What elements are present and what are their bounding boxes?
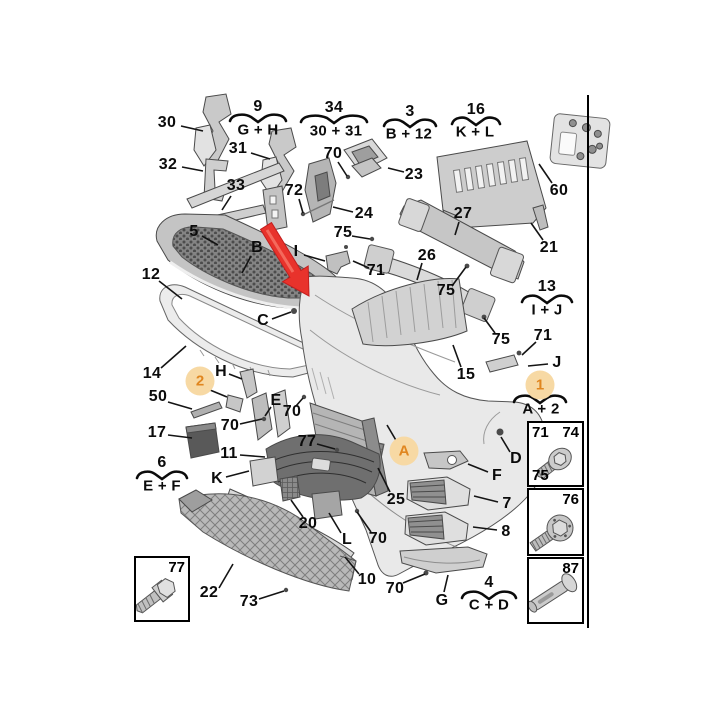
leader-line [259,591,284,599]
leader-line [417,263,422,280]
leader-lines-layer [0,0,720,720]
legend-box-pin-87: 87 [527,557,584,624]
leader-line [329,513,341,533]
legend-label-87: 87 [562,560,579,577]
leader-line [522,342,536,355]
grouping-brace [301,116,367,123]
leader-line [468,464,488,472]
leader-line [387,425,397,442]
legend-label-71: 71 [532,424,549,441]
legend-box-bolt-76: 76 [527,488,584,556]
leader-line [345,557,359,574]
legend-label-75: 75 [532,467,549,484]
leader-line [159,281,182,299]
leader-line [333,207,353,212]
leader-line [455,222,459,235]
leader-line [272,312,291,319]
leader-line [453,345,461,367]
grouping-brace [384,120,436,127]
grouping-brace [452,118,500,125]
leader-line [338,162,347,176]
leader-line [229,374,242,379]
leader-line [403,574,425,583]
leader-line [182,167,203,171]
leader-line [299,199,303,213]
leader-line [265,407,271,416]
legend-box-screw-77: 77 [134,556,190,622]
leader-line [317,444,335,449]
leader-line [304,255,325,261]
leader-line [444,575,448,592]
legend-label-76: 76 [562,491,579,508]
parts-diagram: 3031323370236072247527215BI26717512C7515… [0,0,720,720]
leader-line [242,256,251,273]
leader-line [226,471,249,477]
leader-line [388,168,404,172]
legend-divider-line [587,95,589,628]
leader-line [353,261,369,268]
leader-line [484,318,495,333]
grouping-brace [137,472,187,479]
leader-line [501,437,510,452]
leader-line [181,126,203,131]
leader-line [168,402,192,409]
leader-line [219,564,233,588]
grouping-brace [522,296,572,303]
leader-line [452,267,466,286]
legend-label-77: 77 [168,559,185,576]
grouping-brace [230,115,286,122]
leader-line [473,527,497,530]
leader-line [210,390,227,397]
leader-line [251,153,270,159]
leader-line [202,236,218,245]
leader-line [240,455,265,457]
grouping-brace [514,396,566,403]
leader-line [296,398,303,406]
leader-line [378,468,390,492]
leader-line [222,196,231,210]
legend-label-74: 74 [562,424,579,441]
leader-line [539,164,552,183]
leader-line [352,236,370,239]
leader-line [161,346,186,368]
leader-line [168,435,192,438]
leader-line [528,364,548,366]
leader-line [357,512,371,532]
leader-line [531,223,543,240]
leader-line [240,419,262,424]
leader-line [474,496,498,502]
leader-line [291,500,303,517]
grouping-brace [462,592,516,599]
legend-box-screw-71-74-75: 71 74 75 [527,421,584,487]
